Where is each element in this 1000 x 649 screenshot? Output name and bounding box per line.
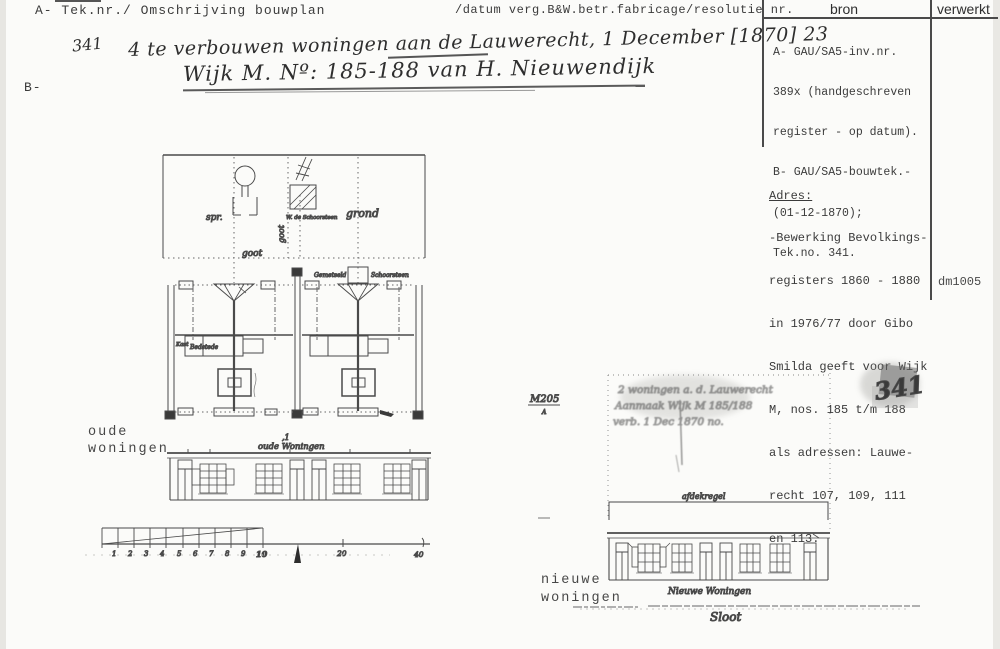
handwritten-description-line1: 4 te verbouwen woningen aan de Lauwerech… — [128, 23, 829, 61]
new-houses-label: nieuwe woningen — [541, 572, 622, 608]
bron-table-left-rule — [762, 0, 764, 147]
annotation-goot-vertical: goot — [277, 224, 286, 243]
handwritten-description-line2: Wijk M. Nº: 185-188 van H. Nieuwendijk — [183, 54, 657, 86]
sloot: Sloot — [573, 606, 920, 624]
scale-bar: 1 2 3 4 5 6 7 8 9 10 20 40 — [85, 528, 430, 563]
scan-edge-right — [993, 0, 1000, 649]
scale-number: 4 — [159, 550, 164, 558]
adres-line: in 1976/77 door Gibo — [769, 317, 927, 331]
bron-line: A- GAU/SA5-inv.nr. — [773, 46, 918, 59]
scale-number: 9 — [241, 550, 246, 558]
bron-column-header: bron — [830, 1, 858, 17]
scale-number: 10 — [256, 549, 268, 559]
header-left-label: A- Tek.nr./ Omschrijving bouwplan — [35, 3, 325, 18]
scanned-archive-card: A- Tek.nr./ Omschrijving bouwplan /datum… — [0, 0, 1000, 649]
scale-number: 2 — [127, 550, 133, 558]
annotation-spr: spr. — [206, 213, 223, 223]
old-houses-label-line2: woningen — [88, 441, 169, 458]
faded-handwriting: 2 woningen a. d. Lauwerecht Aanmaak Wijk… — [613, 384, 774, 472]
verwerkt-column-header: verwerkt — [937, 1, 990, 17]
corner-note-sub: A — [541, 409, 547, 416]
new-houses-label-line2: woningen — [541, 590, 622, 608]
faded-line: 2 woningen a. d. Lauwerecht — [617, 384, 774, 396]
adres-line: registers 1860 - 1880 — [769, 274, 927, 288]
scale-number: 5 — [177, 550, 182, 558]
parapet-label: afdekregel — [682, 492, 726, 501]
faded-line: verb. 1 Dec 1870 no. — [613, 416, 724, 428]
header-mid-label: /datum verg.B&W.betr.fabricage/resolutie… — [455, 3, 794, 17]
top-edge-fragment — [55, 0, 101, 2]
annotation-gemetseld: Gemetseld — [314, 272, 347, 279]
scale-number: 1 — [112, 550, 116, 558]
new-houses-elevation: Nieuwe Woningen — [607, 533, 830, 597]
scale-end-label: 40 — [413, 550, 424, 559]
old-houses-elevation: oude Woningen — [167, 442, 431, 500]
annotation-mark: ,1 — [282, 433, 290, 442]
faded-line: Aanmaak Wijk M 185/188 — [614, 400, 753, 412]
corner-note: M205 A — [528, 394, 560, 416]
new-houses-label-line1: nieuwe — [541, 572, 622, 590]
stamp-341: 341 — [872, 364, 926, 408]
scale-number: 8 — [225, 550, 230, 558]
annotation-bedstede: Bedstede — [189, 344, 219, 351]
bron-line: 389x (handgeschreven — [773, 86, 918, 99]
old-houses-cursive-title: oude Woningen — [258, 442, 325, 452]
adres-heading: Adres: — [769, 189, 927, 203]
old-houses-label-line1: oude — [88, 424, 169, 441]
annotation-goot-horizontal: goot — [242, 249, 263, 259]
annotation-grond: grond — [346, 207, 379, 220]
scale-number: 3 — [144, 550, 149, 558]
scan-edge-left — [0, 0, 6, 649]
chimney-note: W. de Schoorsteen — [286, 215, 338, 221]
new-houses-cursive-title: Nieuwe Woningen — [667, 587, 751, 597]
floor-plan: W. de Schoorsteen spr. goot grond goot — [163, 155, 425, 442]
scale-number: 6 — [193, 550, 198, 558]
old-houses-drawing: W. de Schoorsteen spr. goot grond goot — [60, 135, 470, 575]
b-label: B- — [24, 80, 42, 95]
bron-table-mid-rule — [930, 0, 932, 300]
stamp-number: 341 — [872, 369, 926, 405]
handwritten-underline-3 — [205, 90, 535, 93]
dm-code: dm1005 — [938, 275, 981, 289]
handwritten-tek-nr: 341 — [71, 33, 103, 55]
sloot-label: Sloot — [710, 610, 742, 624]
old-houses-label: oude woningen — [88, 424, 169, 458]
adres-line: -Bewerking Bevolkings- — [769, 231, 927, 245]
scale-mid-label: 20 — [336, 549, 347, 558]
bron-line: register - op datum). — [773, 126, 918, 139]
corner-note-text: M205 — [529, 394, 559, 405]
annotation-kast: Kast — [175, 342, 189, 348]
scale-number: 7 — [209, 550, 214, 558]
annotation-schoorsteen: Schoorsteen — [371, 272, 409, 279]
